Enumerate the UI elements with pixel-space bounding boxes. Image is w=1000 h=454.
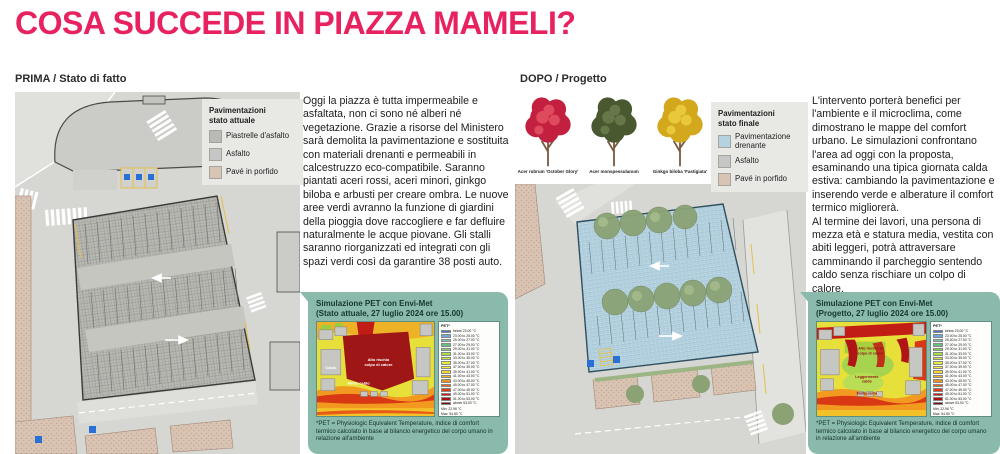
legend-swatch: [209, 148, 222, 161]
tree-figure: Acer monspessulanum: [583, 92, 645, 174]
pet-swatch: [933, 366, 943, 369]
dopo-description: L'intervento porterà benefici per l'ambi…: [812, 95, 998, 296]
legend-item-label: Asfalto: [735, 157, 759, 166]
pet-swatch: [933, 348, 943, 351]
prima-legend-items: Piastrelle d'asfalto Asfalto Pavé in por…: [209, 130, 297, 179]
pet-scale-entry: above 53.00 °C: [441, 401, 497, 406]
svg-text:Caldo: Caldo: [325, 365, 337, 370]
tree-illustration: [519, 92, 577, 168]
legend-swatch: [718, 173, 731, 186]
pet-swatch: [933, 339, 943, 342]
pet-swatch: [441, 397, 451, 400]
svg-text:Molto caldo: Molto caldo: [348, 381, 371, 386]
pet-swatch: [441, 330, 451, 333]
pet-swatch: [441, 352, 451, 355]
dopo-sim-subtitle: (Progetto, 27 luglio 2024 ore 15.00): [816, 309, 992, 319]
legend-item: Asfalto: [718, 155, 802, 168]
tree-illustration: [651, 92, 709, 168]
pet-swatch: [441, 361, 451, 364]
prima-description: Oggi la piazza è tutta impermeabile e as…: [303, 95, 509, 269]
pet-swatch: [933, 330, 943, 333]
legend-item: Asfalto: [209, 148, 297, 161]
tree-illustration: [585, 92, 643, 168]
dopo-pavement-legend: Pavimentazioni stato finale Pavimentazio…: [711, 102, 808, 192]
dopo-sim-title: Simulazione PET con Envi-Met: [816, 299, 992, 309]
dopo-header: DOPO / Progetto: [520, 73, 607, 85]
pet-scale-left: PET* below 23.00 °C 23.00 to 25.00 °C 25…: [438, 321, 500, 417]
tree-figure: Ginkgo biloba 'Fastigiata': [649, 92, 711, 174]
legend-swatch: [209, 166, 222, 179]
pet-swatch: [933, 343, 943, 346]
legend-item-label: Piastrelle d'asfalto: [226, 132, 289, 141]
pet-scale-right: PET* below 23.00 °C 23.00 to 25.00 °C 25…: [930, 321, 992, 417]
pet-swatch: [441, 375, 451, 378]
prima-pavement-legend: Pavimentazioni stato attuale Piastrelle …: [202, 99, 303, 185]
prima-sim-title: Simulazione PET con Envi-Met: [316, 299, 500, 309]
svg-text:colpo di calore: colpo di calore: [364, 362, 393, 367]
pet-swatch: [441, 393, 451, 396]
pet-swatch: [441, 384, 451, 387]
pet-swatch: [933, 393, 943, 396]
legend-item: Pavé in porfido: [718, 173, 802, 186]
legend-swatch: [718, 135, 731, 148]
pet-swatch: [441, 339, 451, 342]
legend-item-label: Pavé in porfido: [735, 175, 787, 184]
page-title: COSA SUCCEDE IN PIAZZA MAMELI?: [15, 5, 575, 42]
svg-text:Molto caldo: Molto caldo: [857, 392, 878, 396]
prima-sim-footnote: *PET = Physiologic Equivalent Temperatur…: [316, 421, 500, 443]
prima-legend-title: Pavimentazioni stato attuale: [209, 106, 297, 125]
legend-swatch: [718, 155, 731, 168]
dopo-pet-heatmap: Alto rischio di colpo di calore Leggerme…: [816, 321, 927, 417]
pet-swatch: [441, 388, 451, 391]
svg-text:Leggermente: Leggermente: [855, 375, 878, 379]
pet-scale-entry: above 53.00 °C: [933, 401, 989, 406]
pet-swatch: [933, 361, 943, 364]
pet-swatch: [441, 402, 451, 405]
tree-label: Acer rubrum 'October Glory': [517, 169, 579, 174]
prima-pet-heatmap: Alto rischio colpo di calore Caldo Molto…: [316, 321, 435, 417]
prima-header: PRIMA / Stato di fatto: [15, 73, 126, 85]
legend-swatch: [209, 130, 222, 143]
prima-simulation-panel: Simulazione PET con Envi-Met (Stato attu…: [308, 292, 508, 454]
dopo-site-plan: [515, 184, 806, 454]
tree-label: Acer monspessulanum: [583, 169, 645, 174]
legend-item: Pavé in porfido: [209, 166, 297, 179]
svg-text:caldo: caldo: [862, 380, 872, 384]
pet-swatch: [933, 379, 943, 382]
pet-swatch: [933, 384, 943, 387]
pet-swatch: [933, 375, 943, 378]
pet-swatch: [441, 343, 451, 346]
pet-swatch: [933, 334, 943, 337]
tree-figure: Acer rubrum 'October Glory': [517, 92, 579, 174]
svg-text:Alto rischio di: Alto rischio di: [858, 347, 883, 351]
pet-swatch: [441, 334, 451, 337]
dopo-site-plan-drawing: [515, 184, 806, 454]
svg-text:colpo di calore: colpo di calore: [858, 351, 884, 355]
pet-swatch: [441, 379, 451, 382]
dopo-simulation-panel: Simulazione PET con Envi-Met (Progetto, …: [808, 292, 1000, 454]
legend-item: Piastrelle d'asfalto: [209, 130, 297, 143]
infographic-page: COSA SUCCEDE IN PIAZZA MAMELI? PRIMA / S…: [0, 0, 1000, 454]
pet-swatch: [933, 388, 943, 391]
legend-item: Pavimentazione drenante: [718, 133, 802, 150]
pet-swatch: [933, 402, 943, 405]
pet-swatch: [441, 357, 451, 360]
tree-row: Acer rubrum 'October Glory' Acer monspes…: [517, 92, 711, 174]
legend-item-label: Asfalto: [226, 150, 250, 159]
legend-item-label: Pavimentazione drenante: [735, 133, 802, 150]
legend-item-label: Pavé in porfido: [226, 168, 278, 177]
dopo-legend-title: Pavimentazioni stato finale: [718, 109, 802, 128]
pet-swatch: [933, 357, 943, 360]
pet-swatch: [933, 352, 943, 355]
pet-swatch: [933, 397, 943, 400]
tree-label: Ginkgo biloba 'Fastigiata': [649, 169, 711, 174]
dopo-sim-footnote: *PET = Physiologic Equivalent Temperatur…: [816, 421, 992, 443]
pet-swatch: [441, 348, 451, 351]
pet-swatch: [441, 370, 451, 373]
pet-swatch: [441, 366, 451, 369]
dopo-legend-items: Pavimentazione drenante Asfalto Pavé in …: [718, 133, 802, 186]
pet-swatch: [933, 370, 943, 373]
prima-sim-subtitle: (Stato attuale, 27 luglio 2024 ore 15.00…: [316, 309, 500, 319]
